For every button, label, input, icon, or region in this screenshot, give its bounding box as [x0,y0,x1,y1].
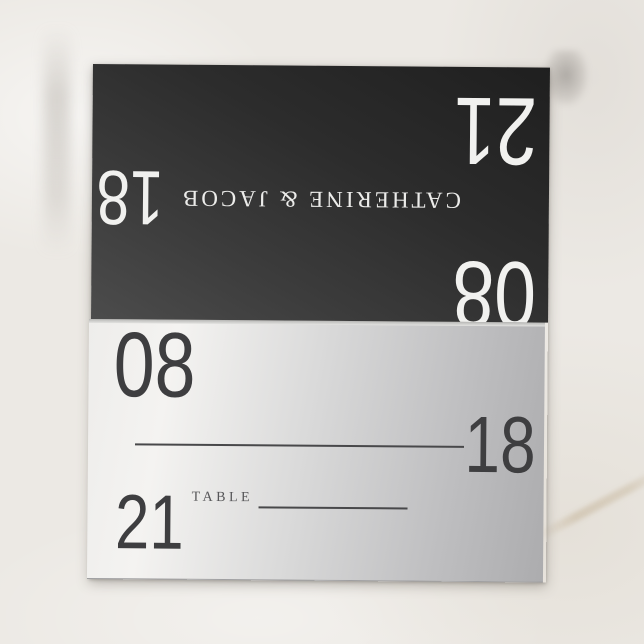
couple-names: CATHERINE & JACOB [92,183,549,215]
table-label: TABLE [192,490,254,506]
guest-name-line [135,443,464,448]
marble-vein [44,28,70,253]
table-number-line [259,506,408,509]
marble-background: 21 18 CATHERINE & JACOB 08 08 18 21 TABL… [0,0,644,644]
card-back-panel: 21 18 CATHERINE & JACOB 08 [91,64,550,323]
front-table-number-18: 18 [468,413,533,478]
marble-vein [535,463,644,541]
front-table-number-08: 08 [114,327,195,404]
place-card: 21 18 CATHERINE & JACOB 08 08 18 21 TABL… [89,64,550,583]
card-front-panel: 08 18 21 TABLE [87,323,545,583]
back-table-number-21: 21 [456,90,535,171]
back-table-number-08: 08 [454,254,535,323]
marble-vein [544,50,588,106]
front-table-number-21: 21 [117,491,181,554]
